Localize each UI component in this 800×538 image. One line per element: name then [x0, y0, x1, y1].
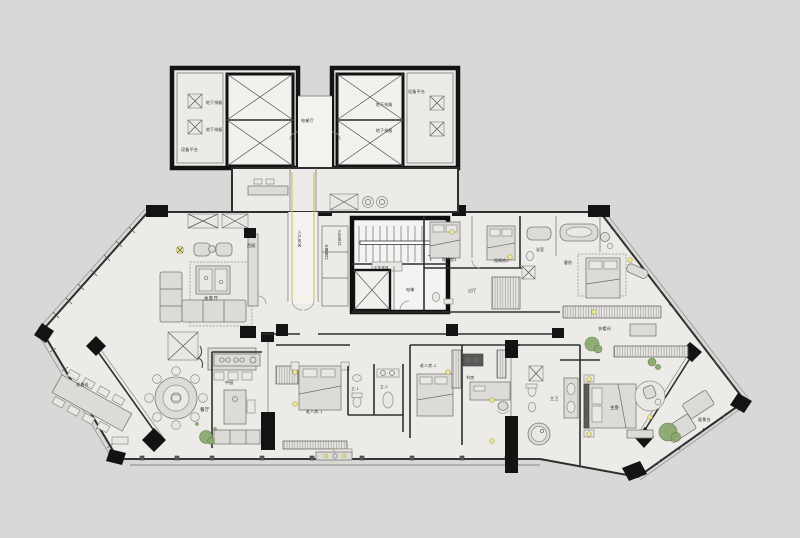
label-dining: 餐厅: [200, 406, 210, 413]
cabinet: [463, 354, 483, 366]
label-living: 会客厅: [204, 295, 219, 302]
left-tower: 设备平台 地下排烟 地下排烟: [172, 68, 298, 168]
wardrobe-row: [614, 346, 688, 357]
label-underground-vent: 地下排烟: [206, 127, 222, 132]
toilet: [432, 292, 439, 301]
label-entry-foyer: 入户玄关: [298, 230, 303, 248]
label-elevator: 电梯: [406, 286, 415, 292]
bathtub-small: [527, 227, 551, 240]
label-master-bedroom: 主卧: [610, 404, 620, 411]
label-elder2: 老人房-2: [420, 363, 437, 368]
office-chair: [498, 402, 508, 411]
bidet: [528, 402, 535, 412]
kitchen-island: [224, 390, 246, 424]
label-bath: 浴室: [536, 247, 544, 252]
closet-island: [630, 324, 656, 336]
floor-plan-svg: 设备平台 地下排烟 地下排烟 设备平台 地下排烟 地下排烟 电梯厅: [0, 0, 800, 538]
plant: [648, 358, 656, 366]
floor-plan-page: 设备平台 地下排烟 地下排烟 设备平台 地下排烟 地下排烟 电梯厅: [0, 0, 800, 538]
wardrobe-row: [563, 306, 661, 318]
label-pressure-shaft: 正压风井: [337, 230, 342, 246]
label-hall: 过厅: [468, 287, 477, 293]
label-kitchen: 中厨: [225, 379, 234, 385]
label-elevator-hall: 电梯厅: [301, 117, 314, 123]
tub-oval: [383, 392, 393, 408]
armchair: [194, 243, 210, 256]
label-equip-platform-left: 设备平台: [181, 146, 198, 152]
label-wc2: 卫-2: [380, 385, 388, 389]
label-cloakroom: 衣帽间: [598, 325, 611, 331]
toilet: [353, 397, 361, 407]
label-underground-vent: 地下排烟: [376, 102, 392, 107]
label-guest-bedroom: 客卧: [564, 259, 573, 265]
label-master-bath: 主卫: [550, 395, 559, 401]
right-tower: 设备平台 地下排烟 地下排烟: [332, 68, 458, 168]
label-pantry: 西厨: [247, 242, 256, 248]
label-underground-vent: 地下排烟: [206, 100, 222, 105]
label-study: 书房: [466, 374, 475, 380]
armchair: [216, 243, 232, 256]
label-elder1: 老人房-1: [306, 409, 323, 414]
label-underground-vent: 地下排烟: [376, 128, 392, 133]
bench: [627, 430, 653, 438]
label-maid2: 保姆房2: [494, 258, 509, 263]
toilet: [526, 251, 533, 260]
label-maid1: 保姆房1: [442, 257, 457, 262]
vestibule: [232, 168, 458, 212]
label-equip-platform-right: 设备平台: [408, 88, 425, 94]
label-view-terrace-right: 观景台: [698, 416, 711, 422]
label-wc1: 卫-1: [351, 387, 359, 391]
label-plumbing-shaft: 水暖管井: [324, 243, 329, 260]
label-view-terrace-left: 观景台: [76, 381, 89, 387]
wardrobe: [492, 277, 520, 309]
